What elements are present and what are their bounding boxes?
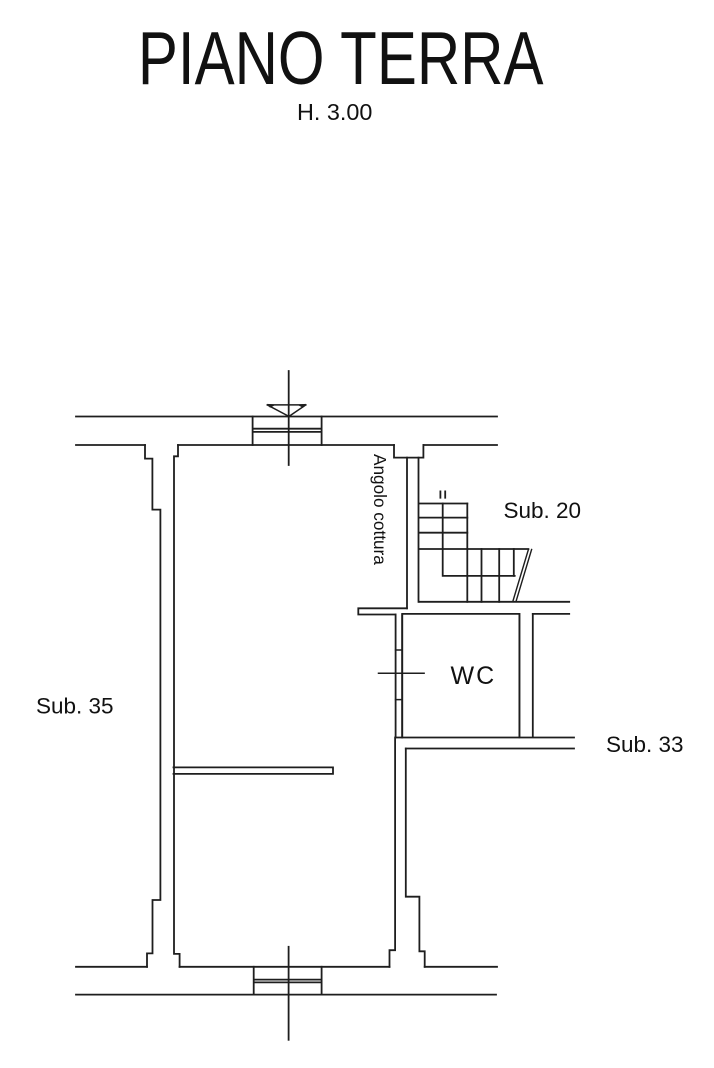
svg-text:Sub. 35: Sub. 35 <box>36 694 114 719</box>
svg-text:WC: WC <box>451 662 497 690</box>
svg-text:Sub. 33: Sub. 33 <box>606 732 684 757</box>
svg-text:PIANO TERRA: PIANO TERRA <box>138 18 544 101</box>
svg-text:Sub. 20: Sub. 20 <box>504 498 582 523</box>
svg-text:Angolo cottura: Angolo cottura <box>370 454 390 565</box>
svg-text:H. 3.00: H. 3.00 <box>297 99 372 125</box>
